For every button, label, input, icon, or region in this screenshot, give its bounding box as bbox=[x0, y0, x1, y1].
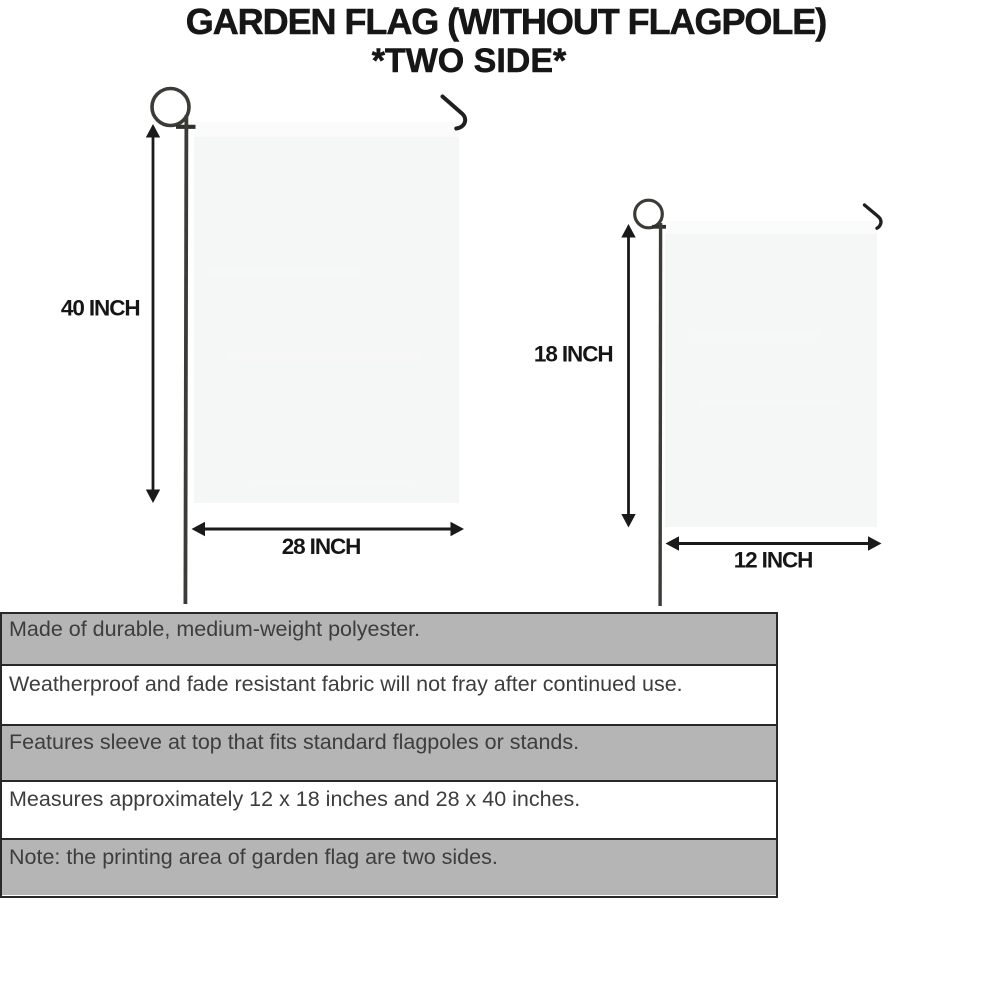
svg-text:28 INCH: 28 INCH bbox=[282, 534, 361, 559]
svg-text:18 INCH: 18 INCH bbox=[534, 342, 613, 367]
svg-text:40 INCH: 40 INCH bbox=[61, 296, 140, 321]
svg-text:12 INCH: 12 INCH bbox=[734, 548, 813, 573]
